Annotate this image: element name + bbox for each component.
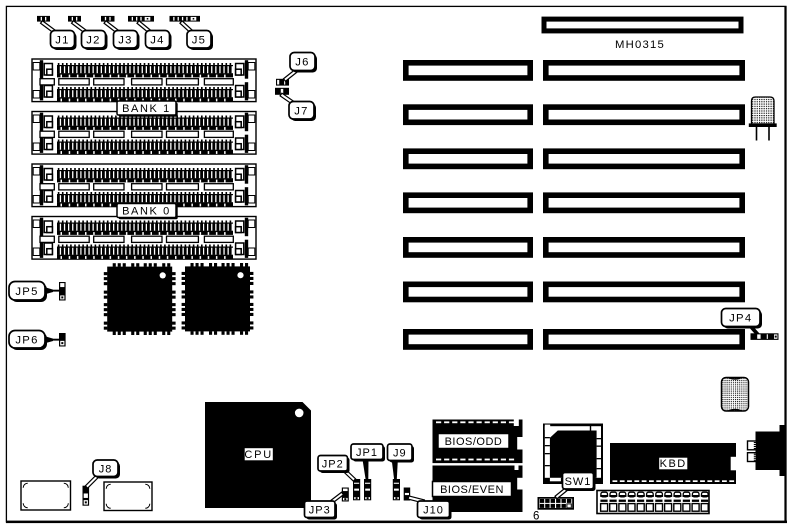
svg-text:J2: J2 <box>86 34 101 46</box>
svg-text:JP2: JP2 <box>322 458 344 470</box>
svg-text:KBD: KBD <box>660 458 687 470</box>
svg-text:JP5: JP5 <box>15 286 38 298</box>
svg-text:BIOS/EVEN: BIOS/EVEN <box>440 484 504 496</box>
svg-text:J10: J10 <box>423 504 444 516</box>
svg-text:J5: J5 <box>192 34 207 46</box>
svg-text:BANK 0: BANK 0 <box>122 206 171 218</box>
svg-text:SW1: SW1 <box>565 476 592 488</box>
svg-text:J4: J4 <box>150 34 165 46</box>
svg-text:6: 6 <box>533 511 539 523</box>
svg-text:J9: J9 <box>393 447 407 459</box>
svg-text:BANK 1: BANK 1 <box>122 103 171 115</box>
svg-text:J6: J6 <box>295 57 310 69</box>
svg-text:MH0315: MH0315 <box>615 39 665 51</box>
svg-text:J8: J8 <box>99 463 113 475</box>
svg-text:JP4: JP4 <box>729 313 752 325</box>
svg-text:JP1: JP1 <box>356 447 378 459</box>
svg-text:J3: J3 <box>118 34 133 46</box>
svg-text:BIOS/ODD: BIOS/ODD <box>445 436 503 448</box>
svg-text:J7: J7 <box>294 105 309 117</box>
svg-text:JP6: JP6 <box>15 334 38 346</box>
svg-text:J1: J1 <box>55 34 70 46</box>
svg-text:CPU: CPU <box>244 449 273 461</box>
svg-text:JP3: JP3 <box>309 504 331 516</box>
